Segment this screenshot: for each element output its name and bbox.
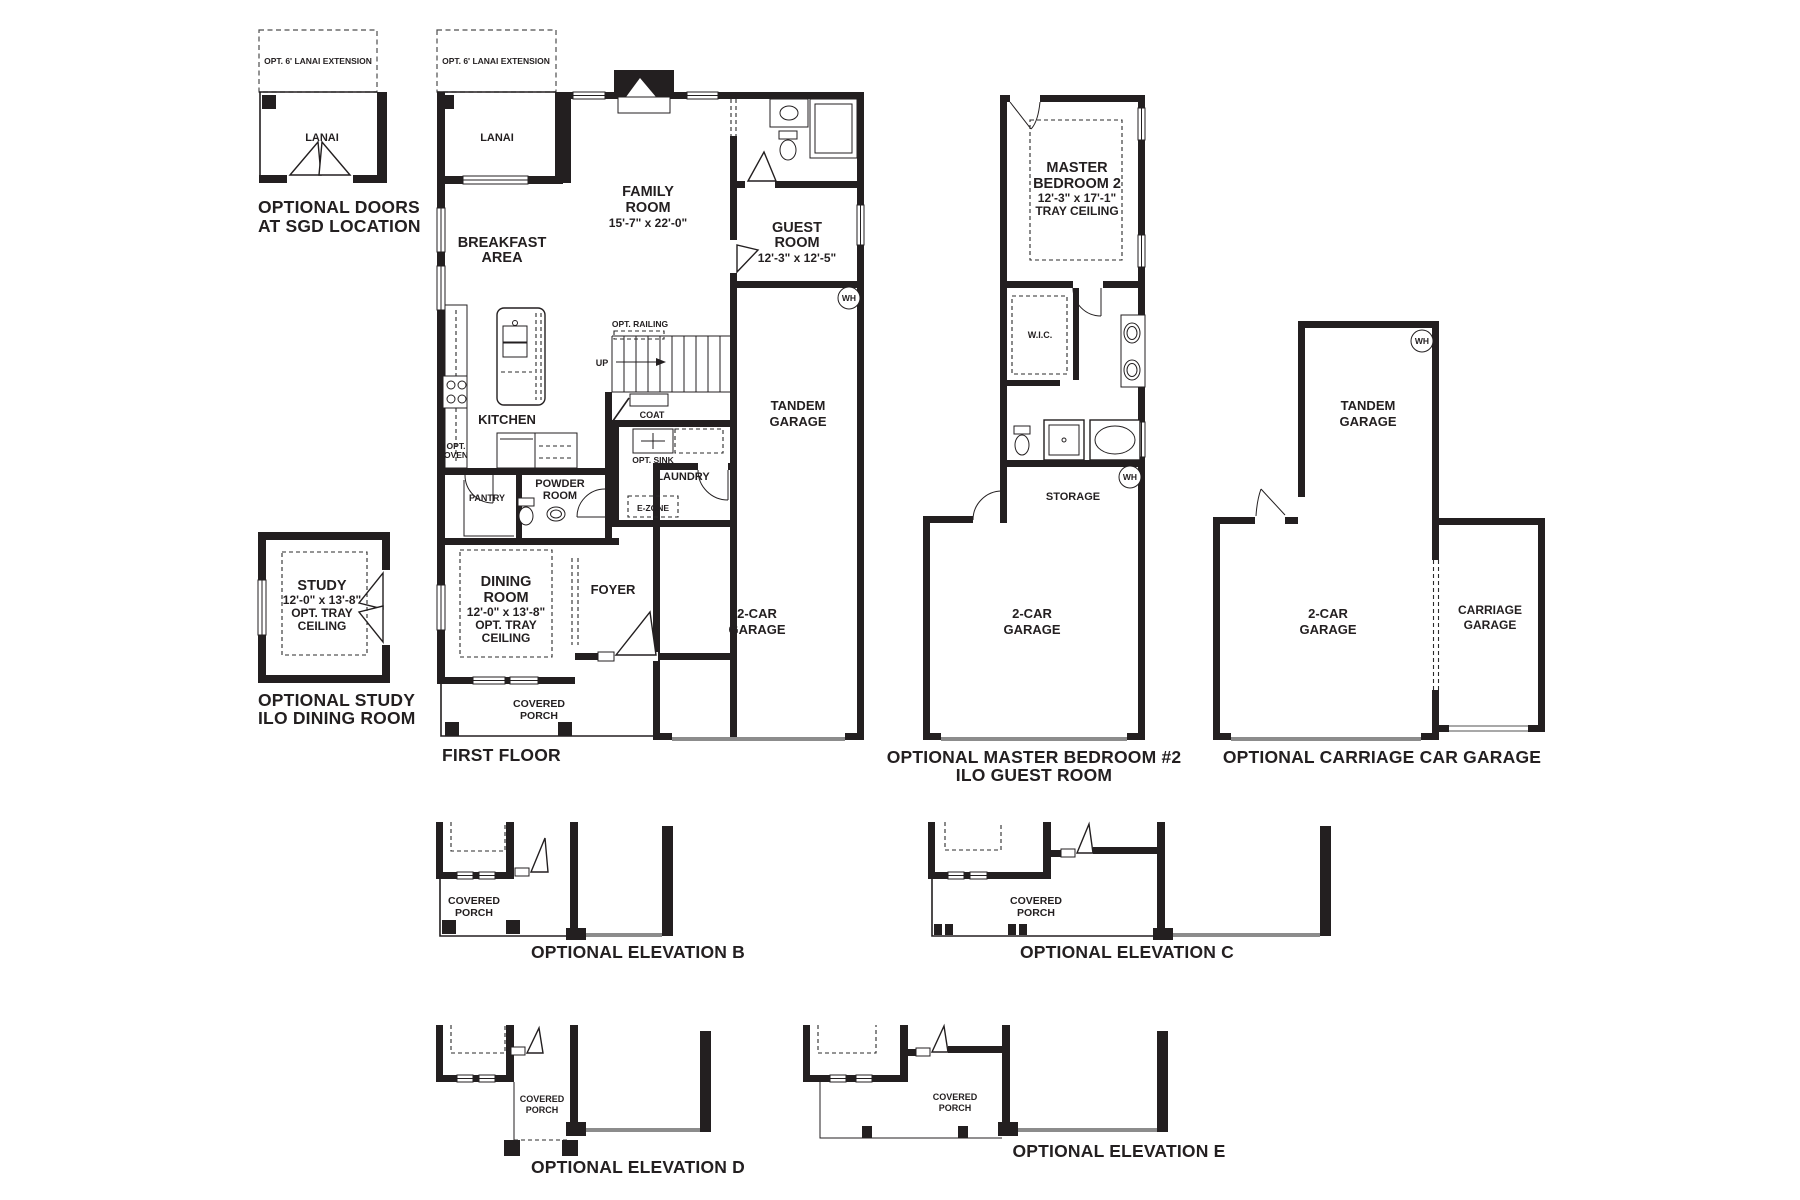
- powder-label: POWDER: [535, 478, 585, 490]
- mb-two-car-label2: GARAGE: [1003, 622, 1060, 637]
- powder-toilet-icon: [518, 498, 534, 506]
- foyer-label: FOYER: [591, 582, 636, 597]
- coat-label: COAT: [640, 410, 665, 420]
- mb-garage-door-line: [941, 737, 1127, 741]
- cg-walls: [1213, 321, 1545, 740]
- wic-label: W.I.C.: [1028, 330, 1053, 340]
- study-dim: 12'-0" x 13'-8": [283, 593, 361, 607]
- study-caption-line2: ILO DINING ROOM: [258, 708, 416, 728]
- mb-dim: 12'-3" x 17'-1": [1038, 191, 1116, 205]
- guest-room-label: GUEST: [772, 220, 822, 236]
- two-car-garage-label2: GARAGE: [728, 622, 785, 637]
- breakfast-label: BREAKFAST: [458, 235, 547, 251]
- elev-b-porch-label: COVERED: [448, 895, 500, 907]
- mb-label: MASTER: [1046, 160, 1108, 176]
- study-opt-tray: OPT. TRAY: [291, 606, 353, 620]
- cg-carriage-door-line: [1449, 726, 1528, 731]
- elev-b-caption: OPTIONAL ELEVATION B: [531, 942, 745, 962]
- two-car-garage-label: 2-CAR: [737, 606, 777, 621]
- bath-door-icon: [748, 152, 776, 181]
- sgd-lanai-label: LANAI: [305, 132, 339, 144]
- mb-toilet-icon: [1014, 426, 1030, 434]
- elev-e-porch-label: COVERED: [933, 1092, 978, 1102]
- dining-opt-tray: OPT. TRAY: [475, 618, 537, 632]
- sgd-ext-label: OPT. 6' LANAI EXTENSION: [264, 56, 372, 66]
- elev-c-porch-label: COVERED: [1010, 895, 1062, 907]
- family-room-dim: 15'-7" x 22'-0": [609, 216, 687, 230]
- tandem-garage-label2: GARAGE: [769, 414, 826, 429]
- ff-covered-porch: COVERED PORCH: [441, 684, 653, 736]
- cg-garage-door-line: [1231, 737, 1421, 741]
- ff-fireplace-icon: [614, 70, 674, 113]
- family-room-label: FAMILY: [622, 184, 674, 200]
- mb-wh-label: WH: [1123, 472, 1137, 482]
- sgd-caption-line1: OPTIONAL DOORS: [258, 197, 420, 217]
- opt-railing-label: OPT. RAILING: [612, 319, 669, 329]
- ff-kitchen: OPT. OVEN KITCHEN: [443, 305, 577, 468]
- ff-lanai-label: LANAI: [480, 132, 514, 144]
- elevation-b: COVERED PORCH OPTIONAL ELEVATION B: [436, 822, 745, 962]
- study-ceiling: CEILING: [298, 619, 347, 633]
- elev-c-porch-label2: PORCH: [1017, 907, 1055, 919]
- dining-dim: 12'-0" x 13'-8": [467, 605, 545, 619]
- dining-ceiling: CEILING: [482, 631, 531, 645]
- ff-lanai: OPT. 6' LANAI EXTENSION LANAI: [437, 30, 563, 184]
- elev-d-caption: OPTIONAL ELEVATION D: [531, 1157, 745, 1177]
- ff-foyer: FOYER: [591, 582, 658, 661]
- porch-label: COVERED: [513, 698, 565, 710]
- elev-c-door-icon: [1077, 824, 1093, 853]
- elevation-d: COVERED PORCH OPTIONAL ELEVATION D: [436, 1025, 745, 1177]
- cg-wh-label: WH: [1415, 336, 1429, 346]
- kitchen-counter-icon: [497, 433, 577, 468]
- sgd-caption-line2: AT SGD LOCATION: [258, 216, 421, 236]
- ff-pantry: PANTRY: [464, 475, 514, 536]
- master-plan: MASTER BEDROOM 2 12'-3" x 17'-1" TRAY CE…: [887, 94, 1182, 785]
- elev-e-caption: OPTIONAL ELEVATION E: [1012, 1141, 1225, 1161]
- laundry-label: LAUNDRY: [656, 471, 710, 483]
- elev-d-porch-label2: PORCH: [526, 1105, 559, 1115]
- ff-laundry: OPT. SINK LAUNDRY E-ZONE: [628, 429, 723, 517]
- cg-tandem-label2: GARAGE: [1339, 414, 1396, 429]
- front-door-icon: [616, 612, 656, 655]
- elev-d-door-icon: [527, 1028, 543, 1053]
- study-caption-line1: OPTIONAL STUDY: [258, 690, 415, 710]
- study-label: STUDY: [297, 578, 346, 594]
- garage-door-line: [672, 737, 845, 741]
- ff-interior-walls: [445, 392, 737, 740]
- mb-storage-label: STORAGE: [1046, 491, 1100, 503]
- up-label: UP: [596, 358, 609, 368]
- elev-b-porch-label2: PORCH: [455, 907, 493, 919]
- elevation-c: COVERED PORCH OPTIONAL ELEVATION C: [928, 822, 1331, 962]
- laundry-counter-outline: [675, 429, 723, 453]
- study-french-doors-icon: [359, 573, 383, 642]
- sgd-plan: OPT. 6' LANAI EXTENSION LANAI OPTIONAL D…: [258, 30, 421, 236]
- ff-stairs: OPT. RAILING UP: [596, 319, 730, 392]
- opt-railing-outline: [614, 331, 664, 339]
- cg-two-car-label2: GARAGE: [1299, 622, 1356, 637]
- elev-e-porch-label2: PORCH: [939, 1103, 972, 1113]
- floorplan-sheet: OPT. 6' LANAI EXTENSION LANAI OPTIONAL D…: [0, 0, 1800, 1200]
- cg-two-car-label: 2-CAR: [1308, 606, 1348, 621]
- elev-d-porch-label: COVERED: [520, 1094, 565, 1104]
- cg-side-door-icon: [1256, 489, 1285, 516]
- study-plan: STUDY 12'-0" x 13'-8" OPT. TRAY CEILING …: [258, 532, 416, 728]
- pantry-label: PANTRY: [469, 493, 505, 503]
- guest-room-label2: ROOM: [774, 235, 819, 251]
- dining-label: DINING: [481, 574, 532, 590]
- cg-carriage-label2: GARAGE: [1464, 618, 1517, 632]
- carriage-plan: WH TANDEM GARAGE 2-CAR GARAGE CARRIAGE G…: [1213, 321, 1545, 767]
- family-room-label2: ROOM: [625, 200, 670, 216]
- master-caption-line1: OPTIONAL MASTER BEDROOM #2: [887, 747, 1182, 767]
- cg-tandem-label: TANDEM: [1341, 398, 1396, 413]
- elev-c-caption: OPTIONAL ELEVATION C: [1020, 942, 1234, 962]
- ff-bath: [730, 99, 864, 189]
- ff-guest-room: GUEST ROOM 12'-3" x 12'-5": [737, 220, 864, 288]
- ff-garage: WH TANDEM GARAGE 2-CAR GARAGE: [653, 287, 864, 741]
- ff-powder-room: POWDER ROOM: [518, 478, 605, 525]
- kitchen-label: KITCHEN: [478, 412, 536, 427]
- mb-label2: BEDROOM 2: [1033, 176, 1121, 192]
- guest-door-icon: [737, 245, 758, 272]
- ezone-label: E-ZONE: [637, 503, 669, 513]
- breakfast-label2: AREA: [481, 250, 523, 266]
- elev-b-door-icon: [531, 838, 548, 872]
- sgd-french-doors-icon: [290, 142, 350, 175]
- guest-room-dim: 12'-3" x 12'-5": [758, 251, 836, 265]
- dining-label2: ROOM: [483, 590, 528, 606]
- elevation-e: COVERED PORCH OPTIONAL ELEVATION E: [803, 1025, 1226, 1161]
- first-floor-plan: OPT. 6' LANAI EXTENSION LANAI: [437, 30, 864, 765]
- floorplan-drawing: OPT. 6' LANAI EXTENSION LANAI OPTIONAL D…: [0, 0, 1800, 1200]
- ff-spine-wall: [729, 92, 738, 740]
- ff-dining-room: DINING ROOM 12'-0" x 13'-8" OPT. TRAY CE…: [460, 550, 552, 657]
- mb-tray-label: TRAY CEILING: [1035, 204, 1118, 218]
- first-floor-caption: FIRST FLOOR: [442, 745, 561, 765]
- opt-sink-label: OPT. SINK: [632, 455, 674, 465]
- porch-label2: PORCH: [520, 710, 558, 722]
- tandem-garage-label: TANDEM: [771, 398, 826, 413]
- elev-e-door-icon: [932, 1026, 948, 1052]
- stairs-arrow-icon: [656, 358, 666, 366]
- carriage-caption: OPTIONAL CARRIAGE CAR GARAGE: [1223, 747, 1541, 767]
- powder-label2: ROOM: [543, 490, 577, 502]
- bath-toilet-icon: [779, 131, 797, 139]
- opt-oven-label2: OVEN: [444, 450, 468, 460]
- ff-ext-label: OPT. 6' LANAI EXTENSION: [442, 56, 550, 66]
- master-caption-line2: ILO GUEST ROOM: [956, 765, 1112, 785]
- wh-label: WH: [842, 293, 856, 303]
- mb-two-car-label: 2-CAR: [1012, 606, 1052, 621]
- cg-carriage-label: CARRIAGE: [1458, 603, 1522, 617]
